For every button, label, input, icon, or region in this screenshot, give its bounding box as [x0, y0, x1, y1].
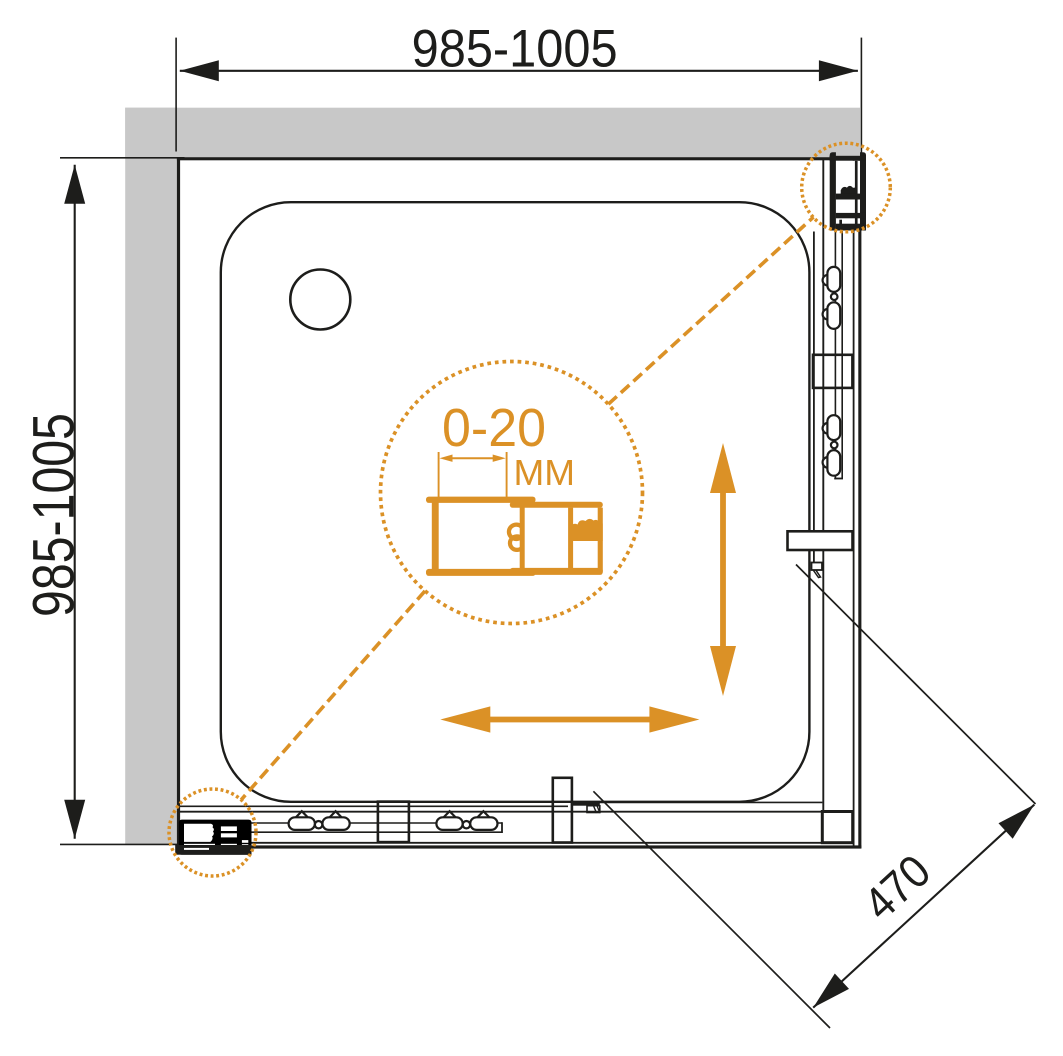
svg-text:985-1005: 985-1005: [22, 413, 87, 617]
svg-text:0-20: 0-20: [442, 398, 546, 458]
svg-text:MM: MM: [514, 452, 576, 493]
svg-text:985-1005: 985-1005: [412, 20, 618, 79]
